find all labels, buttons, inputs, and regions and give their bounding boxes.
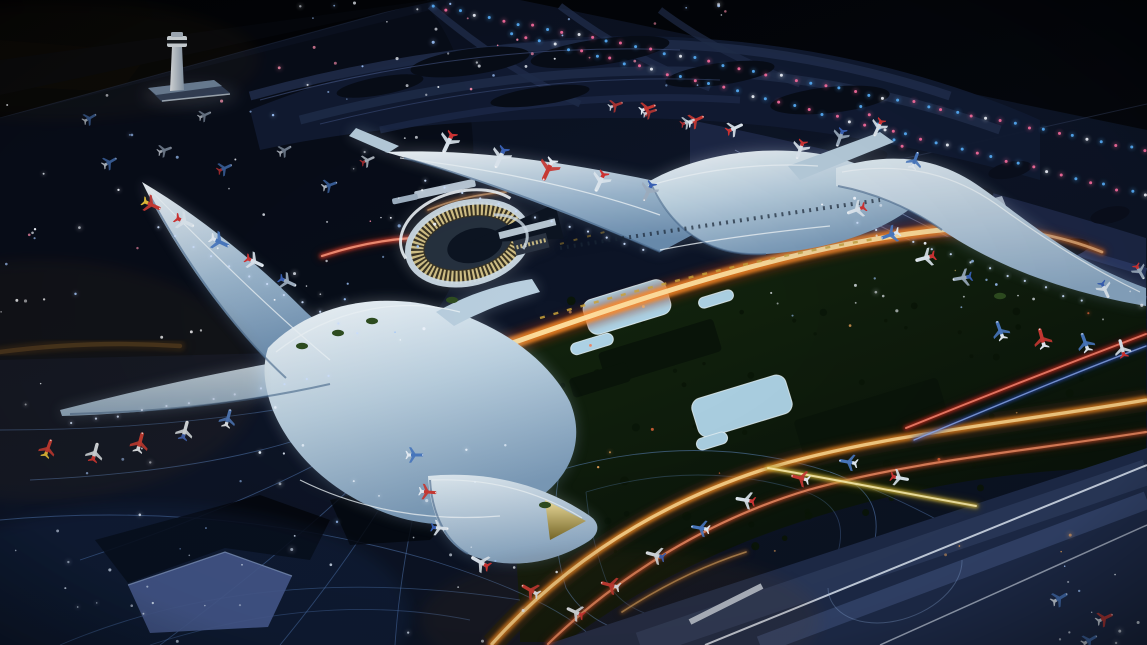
vignette — [0, 0, 1147, 645]
scene-svg — [0, 0, 1147, 645]
airport-night-model-photo — [0, 0, 1147, 645]
